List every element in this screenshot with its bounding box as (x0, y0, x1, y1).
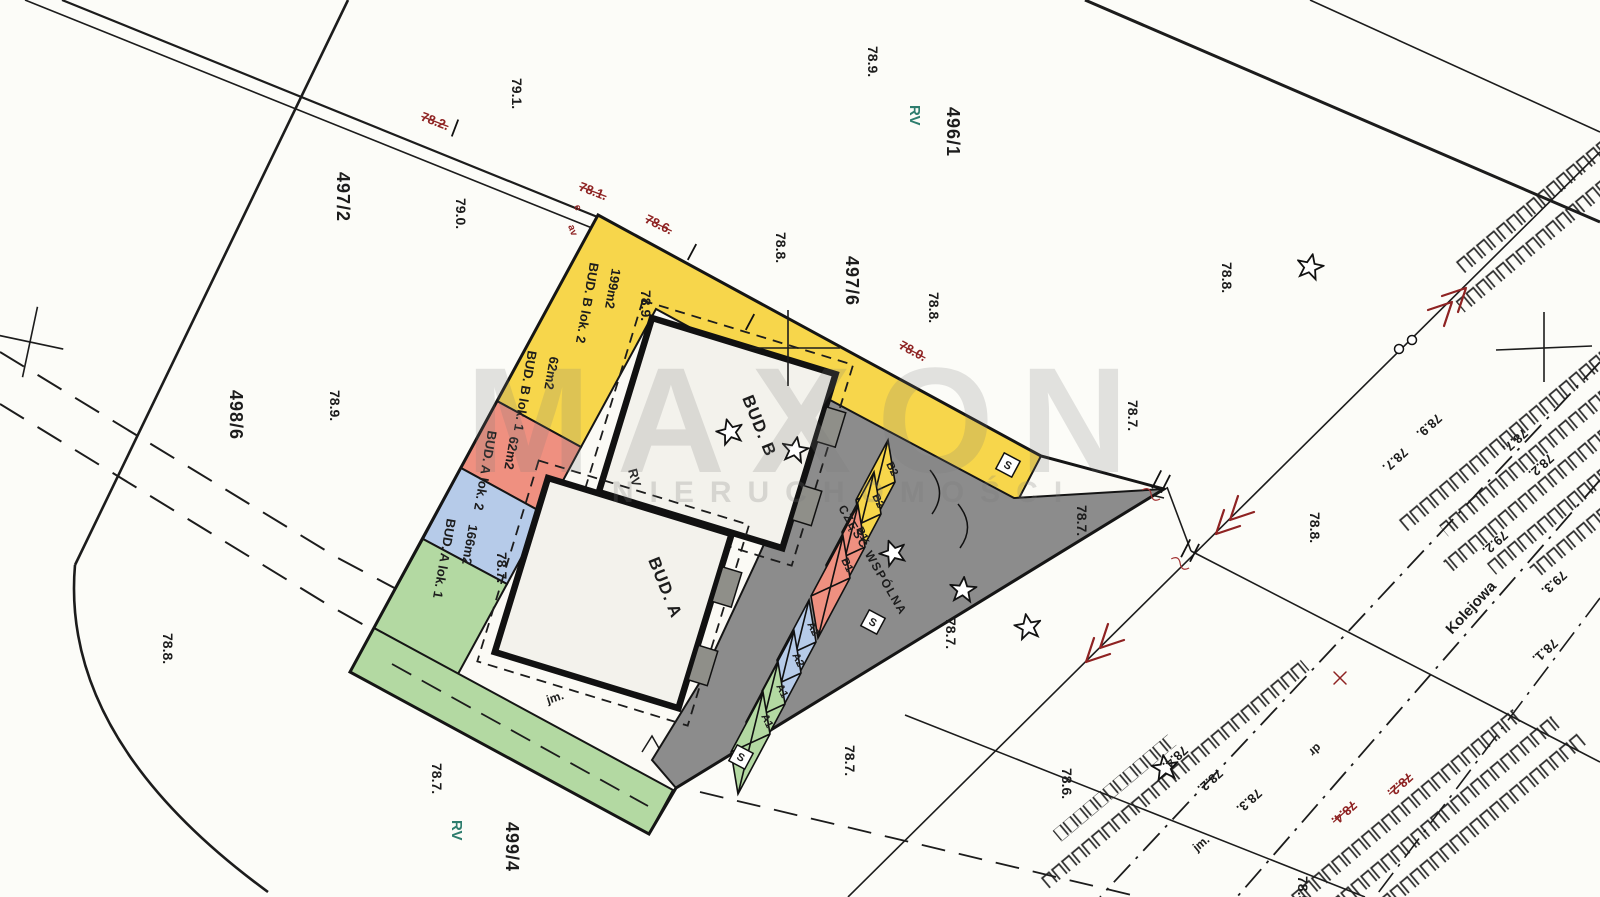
elevation-label: 78.7. (1074, 505, 1090, 536)
elevation-label: 78.8. (773, 232, 789, 263)
elevation-label: 78.7. (943, 618, 959, 649)
utility-point (1408, 336, 1417, 345)
elevation-label: 78.7. (842, 745, 858, 776)
elevation-label: 78.8. (926, 292, 942, 323)
elevation-label: 78.5. (1295, 876, 1311, 897)
land-use-rv: RV (448, 820, 465, 841)
elevation-label: 78.7. (494, 552, 510, 583)
elevation-label: 78.9. (327, 390, 343, 421)
watermark: MAXON NIERUCHOMOŚCI (466, 336, 1154, 509)
cadastral-site-plan: B2 B2 B1 B1 A2 A2 A1 A1 S (0, 0, 1600, 897)
elevation-label: 78.7. (429, 763, 445, 794)
elevation-label: 79.0. (453, 198, 469, 229)
watermark-line2: NIERUCHOMOŚCI (612, 475, 1078, 509)
parcel-number-499-4: 499/4 (502, 822, 522, 872)
elevation-label: 78.8. (1307, 512, 1323, 543)
utility-point (1395, 345, 1404, 354)
elevation-label: 78.9. (865, 46, 881, 77)
elevation-label: 78.6. (1059, 768, 1075, 799)
parcel-number-498-6: 498/6 (226, 390, 246, 440)
elevation-label: 78.9. (638, 290, 654, 321)
elevation-label: 78.8. (160, 633, 176, 664)
elevation-label: 79.1. (509, 78, 525, 109)
parcel-number-497-2: 497/2 (333, 172, 353, 222)
land-use-rv: RV (906, 105, 923, 126)
parcel-number-497-6: 497/6 (842, 256, 862, 306)
parcel-number-496-1: 496/1 (943, 107, 963, 157)
elevation-label: 78.8. (1219, 262, 1235, 293)
site-plan-map: B2 B2 B1 B1 A2 A2 A1 A1 S (0, 0, 1600, 897)
